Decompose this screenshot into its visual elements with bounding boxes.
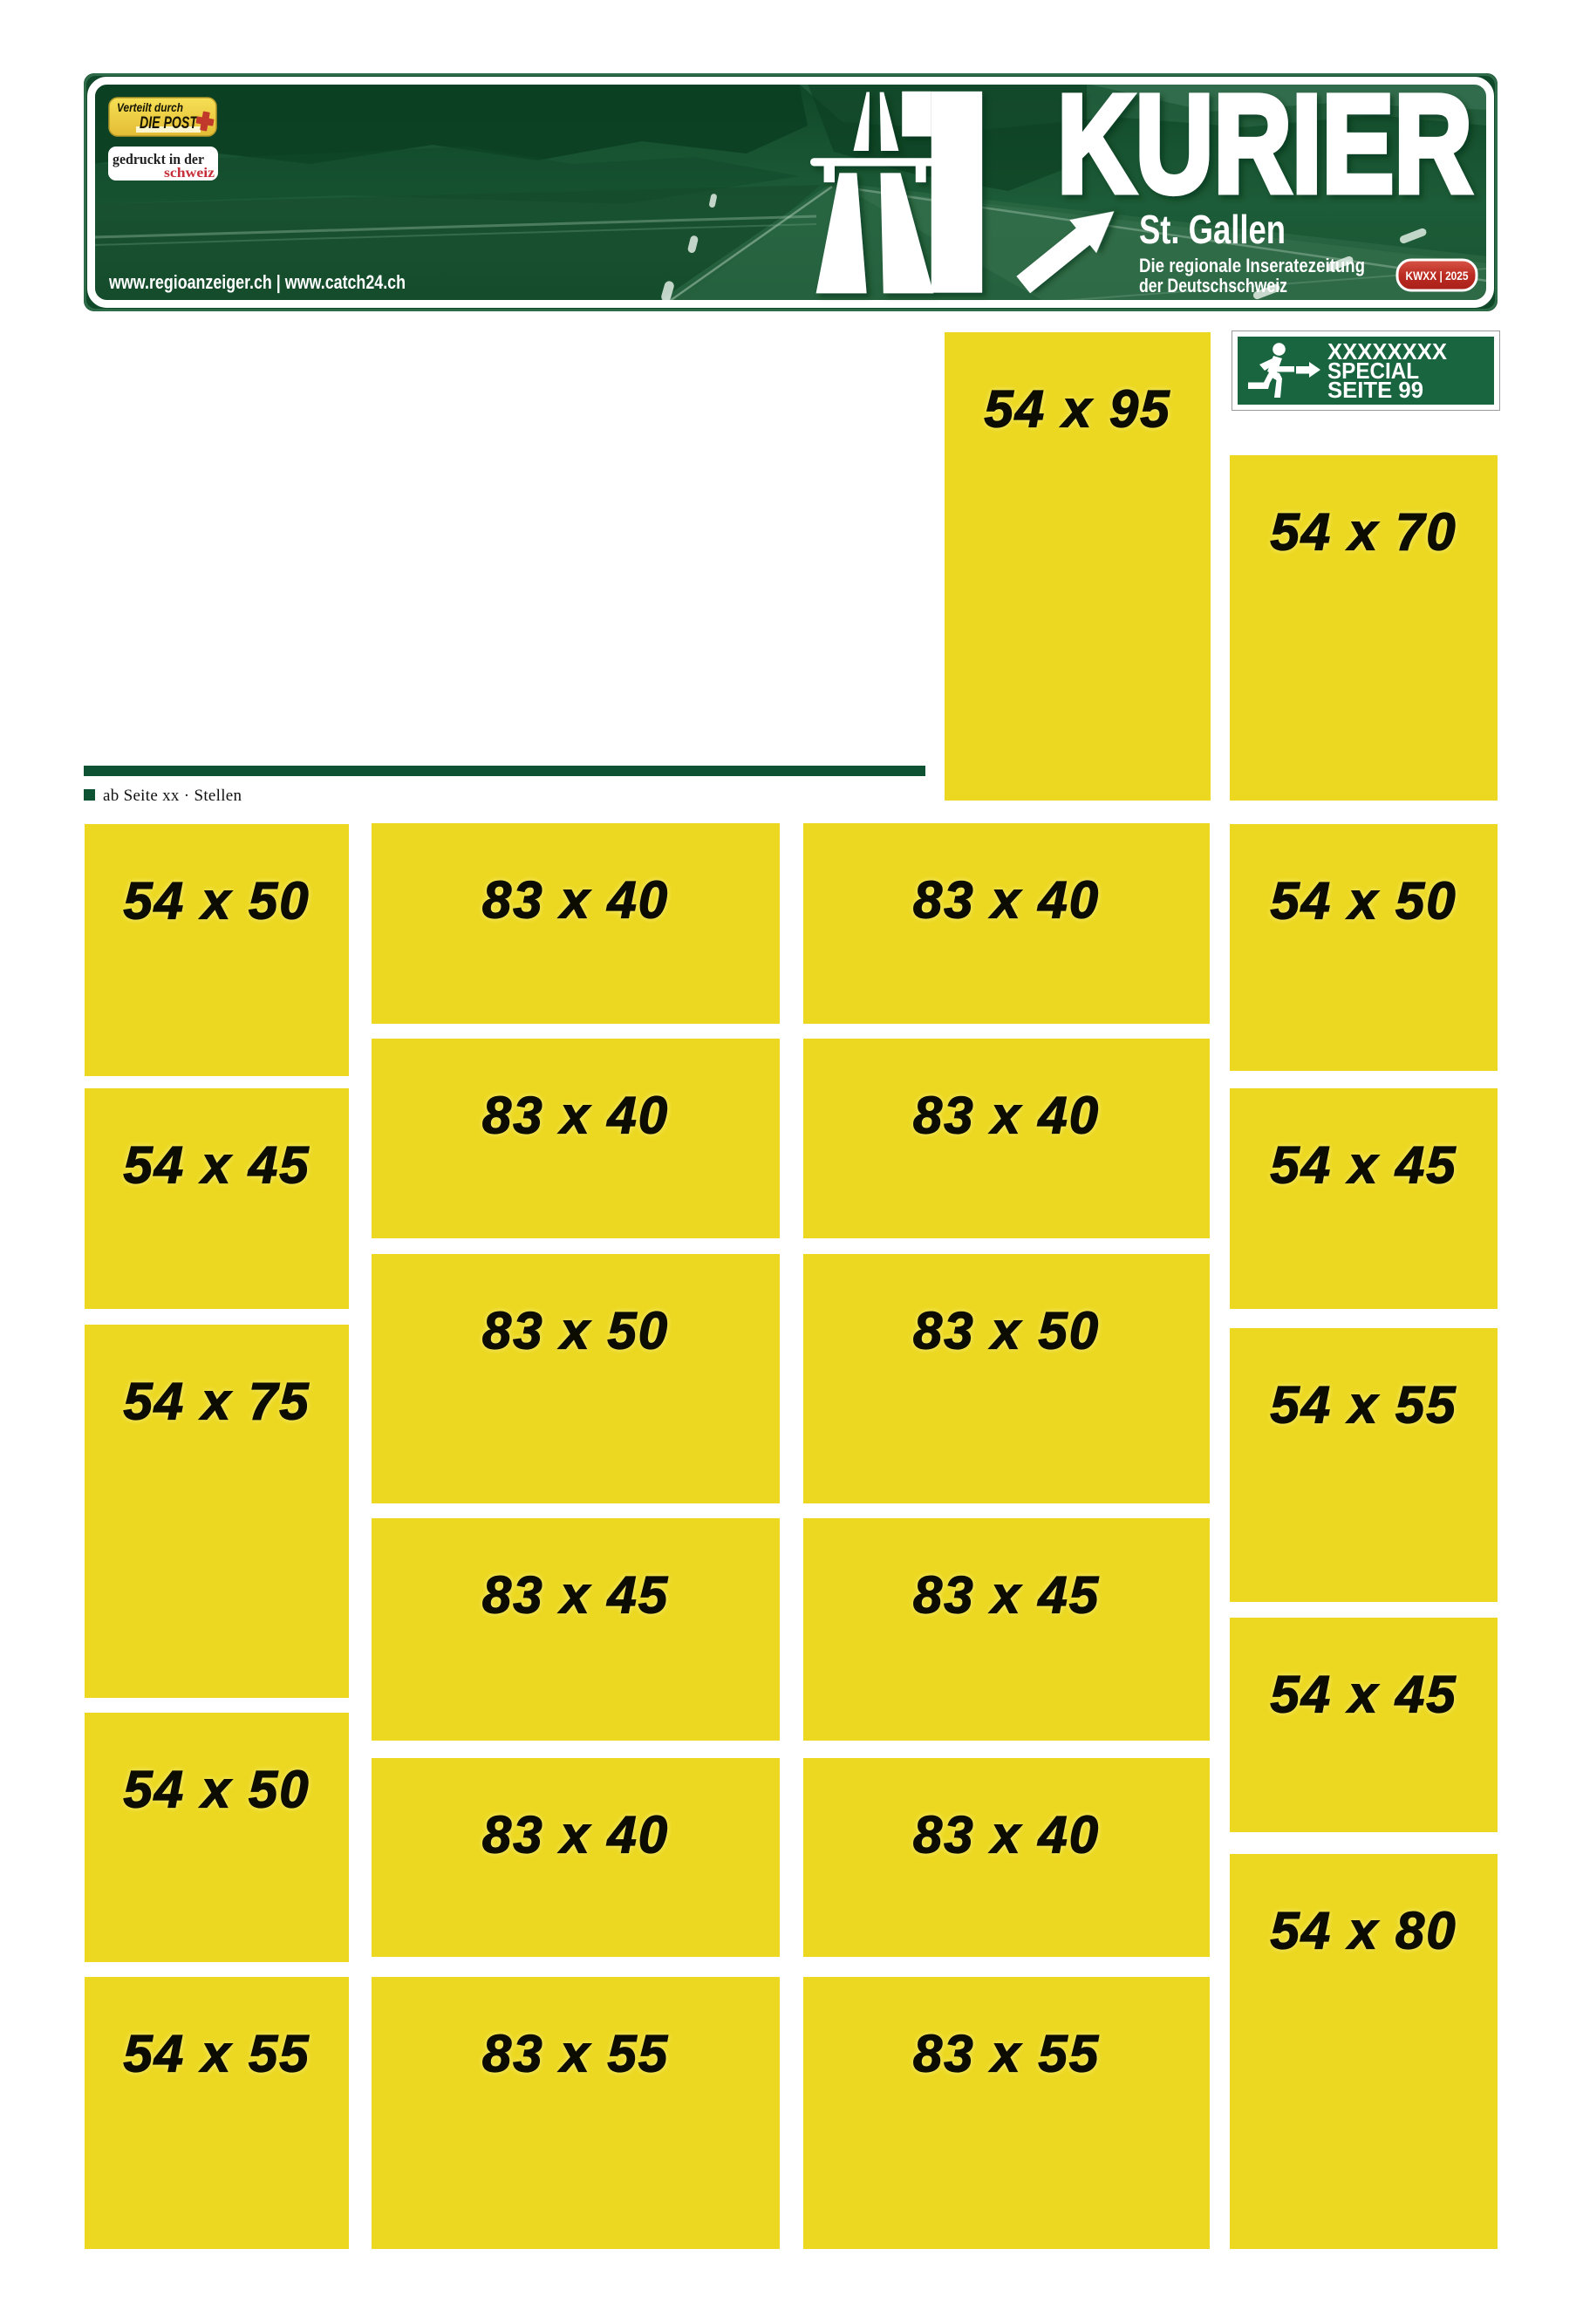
svg-text:Die regionale Inseratezeitung: Die regionale Inseratezeitung — [1139, 255, 1365, 276]
svg-text:schweiz: schweiz — [164, 166, 215, 181]
svg-text:DIE POST: DIE POST — [140, 114, 198, 133]
svg-text:Verteilt durch: Verteilt durch — [117, 101, 183, 114]
svg-text:KURIER: KURIER — [1057, 73, 1472, 221]
svg-text:www.regioanzeiger.ch | www.cat: www.regioanzeiger.ch | www.catch24.ch — [108, 271, 406, 293]
svg-text:der Deutschschweiz: der Deutschschweiz — [1139, 275, 1287, 296]
svg-text:KWXX | 2025: KWXX | 2025 — [1406, 269, 1469, 283]
svg-text:St. Gallen: St. Gallen — [1139, 207, 1286, 252]
svg-text:SEITE 99: SEITE 99 — [1327, 377, 1423, 403]
